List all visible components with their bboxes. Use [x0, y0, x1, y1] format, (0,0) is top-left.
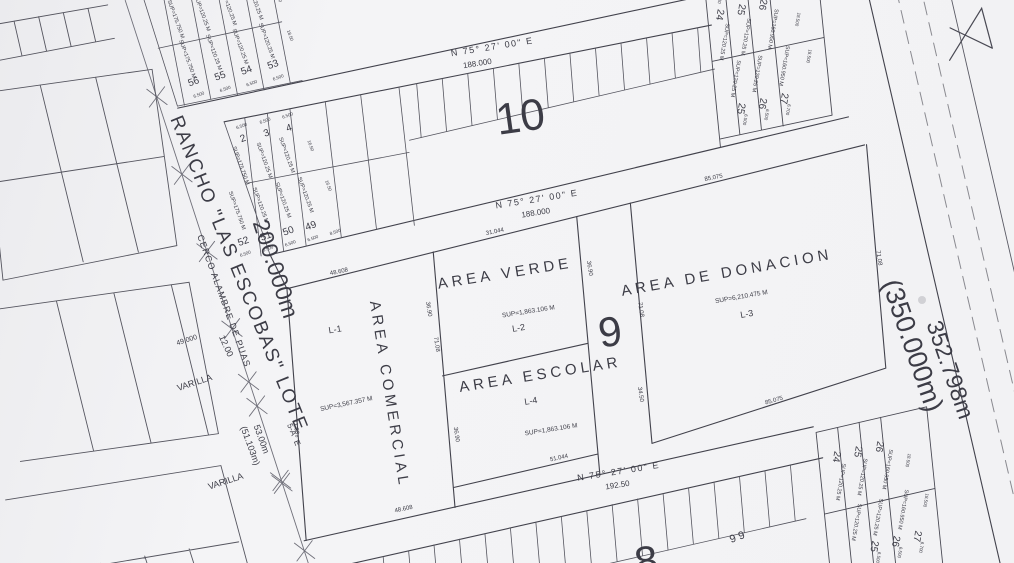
sup-label: SUP=160.950 M: [880, 449, 893, 490]
sup-label: SUP=120.25 M: [871, 498, 883, 536]
lot-width: 6.500: [193, 90, 206, 99]
block10-lot-strip: [400, 26, 719, 140]
sup-label: SUP=120.25 M: [231, 28, 250, 66]
varilla-label: VARILLA: [207, 471, 245, 492]
street-a-bearing: N 75° 27' 00" E: [450, 35, 534, 58]
lot-width: 6.500: [307, 234, 320, 243]
area-donacion-lot: L-3: [740, 308, 755, 320]
sup-label: SUP=120.25 M: [717, 23, 729, 61]
sup-label: SUP=120.25 M: [193, 0, 212, 33]
area-verde-title: AREA VERDE: [436, 255, 573, 293]
dimension: 48.608: [394, 505, 414, 515]
lot-number: 49: [304, 219, 319, 233]
lot-number: 53: [266, 58, 281, 72]
area-verde-lot: L-2: [511, 322, 525, 334]
sup-label: SUP=120.25 M: [257, 22, 276, 60]
lot-number: 26: [873, 440, 886, 453]
lot-width: 6.500: [272, 73, 285, 82]
sup-label: SUP=120.25 M: [245, 0, 264, 21]
lot-number: 25: [734, 3, 747, 16]
lot-width: 6.700: [785, 104, 792, 116]
dimension: 71.08: [432, 337, 440, 353]
dimension: 85.075: [704, 173, 724, 183]
block-number-8: 8: [631, 536, 661, 563]
sup-label: SUP=175.750 M: [231, 146, 251, 187]
lot-number: 25: [851, 445, 864, 458]
labels-layer: N 75° 27' 00" E188.000N 75° 27' 00" E188…: [122, 0, 998, 563]
lot-number: 55: [213, 69, 228, 83]
sup-label: SUP=160.950 M: [766, 8, 779, 49]
lot-depth: 18.500: [922, 493, 929, 508]
area-comercial-sup: SUP=3,567.357 M: [320, 395, 374, 413]
dimension: 71.08: [874, 250, 882, 266]
topright-lot-grid: [696, 0, 840, 147]
area-comercial-lot: L-1: [328, 323, 342, 335]
lot-depth: 16.50: [324, 179, 333, 192]
survey-map: N 75° 27' 00" E188.000N 75° 27' 00" E188…: [0, 0, 1014, 563]
area-donacion-sup: SUP=6,210.475 M: [715, 289, 769, 305]
road-centerline-dashed: [896, 0, 1014, 560]
sup-label: SUP=120.25 M: [255, 142, 274, 180]
lot-depth: 18.500: [794, 12, 801, 27]
area-escolar-title: AREA ESCOLAR: [458, 354, 623, 396]
lot-depth: 18.500: [805, 49, 812, 64]
bottomright-lot-grid: [809, 407, 951, 563]
sup-label: SUP=175.750 M: [177, 39, 197, 80]
dimension: 36.90: [585, 261, 593, 277]
lot-width: 6.500: [281, 111, 294, 120]
area-escolar-sup: SUP=1,863.106 M: [524, 422, 578, 437]
area-donacion-title: AREA DE DONACION: [620, 246, 834, 300]
varilla-label: VARILLA: [176, 372, 214, 393]
lot-width: 6.500: [763, 109, 770, 121]
lot-width: 6.500: [875, 551, 882, 563]
sup-label: SUP=120.25 M: [750, 55, 762, 93]
street-b-distance: 188.000: [521, 206, 552, 219]
dimension: 36.90: [424, 301, 432, 317]
north-arrow: [943, 8, 993, 61]
lot-depth: 16.50: [274, 0, 283, 3]
dimension: 85.075: [765, 395, 785, 406]
lot-width: 6.500: [742, 114, 749, 126]
lot-depth: 16.50: [306, 140, 315, 153]
block-number-10: 10: [493, 89, 548, 144]
street-c-distance: 192.50: [605, 479, 631, 492]
lot-number: 9 9: [728, 529, 746, 546]
sup-label: SUP=120.25 M: [729, 60, 741, 98]
dimension: 71.08: [636, 302, 644, 318]
lot-width: 8.500: [329, 228, 342, 237]
road-edge-line: [945, 0, 1014, 507]
lot-width: 6.500: [259, 116, 272, 125]
lot-number: 24: [830, 450, 843, 463]
sup-label: SUP=120.25 M: [739, 18, 751, 56]
block-number-9: 9: [595, 307, 625, 357]
lot-number: 50: [281, 224, 296, 238]
lot-width: 6.700: [918, 541, 925, 553]
lot-width: 6.500: [246, 79, 259, 88]
dimension: 49.000: [176, 334, 199, 347]
lot-number: 26: [756, 0, 769, 11]
lot-depth: 18.50: [286, 29, 295, 42]
scanned-plat-page: N 75° 27' 00" E188.000N 75° 27' 00" E188…: [0, 0, 1014, 563]
street-c-bearing: N 75° 27' 00" E: [576, 460, 660, 483]
sup-label: SUP=120.25 M: [296, 176, 315, 214]
dimension: 36.90: [452, 427, 460, 443]
area-verde-sup: SUP=1,863.106 M: [502, 304, 556, 319]
sup-label: SUP=175.750 M: [166, 0, 186, 40]
lot-depth: 18.500: [905, 453, 912, 468]
lot-width: 6.500: [284, 239, 297, 248]
sup-label: SUP=160.950 M: [896, 489, 909, 530]
sup-label: SUP=120.25 M: [273, 182, 292, 220]
sup-label: SUP=160.950 M: [777, 45, 790, 86]
sup-label: SUP=120.25 M: [204, 34, 223, 72]
lot-width: 6.500: [717, 0, 724, 5]
sup-label: SUP=120.25 M: [277, 137, 296, 175]
lot-width: 6.500: [219, 84, 232, 93]
scan-smudge: [918, 296, 926, 304]
area-escolar-lot: L-4: [524, 395, 538, 407]
lot-number: 24: [713, 8, 726, 21]
sup-label: SUP=120.25 M: [251, 187, 270, 225]
lot-number: 54: [240, 64, 255, 78]
street-a-distance: 188.000: [462, 57, 493, 70]
dimension: 34.50: [636, 387, 644, 403]
sup-label: SUP=120.25 M: [850, 503, 862, 541]
lot-number: 52: [236, 235, 251, 249]
area-comercial-title: AREA COMERCIAL: [366, 300, 412, 490]
lot-width: 6.500: [896, 546, 903, 558]
